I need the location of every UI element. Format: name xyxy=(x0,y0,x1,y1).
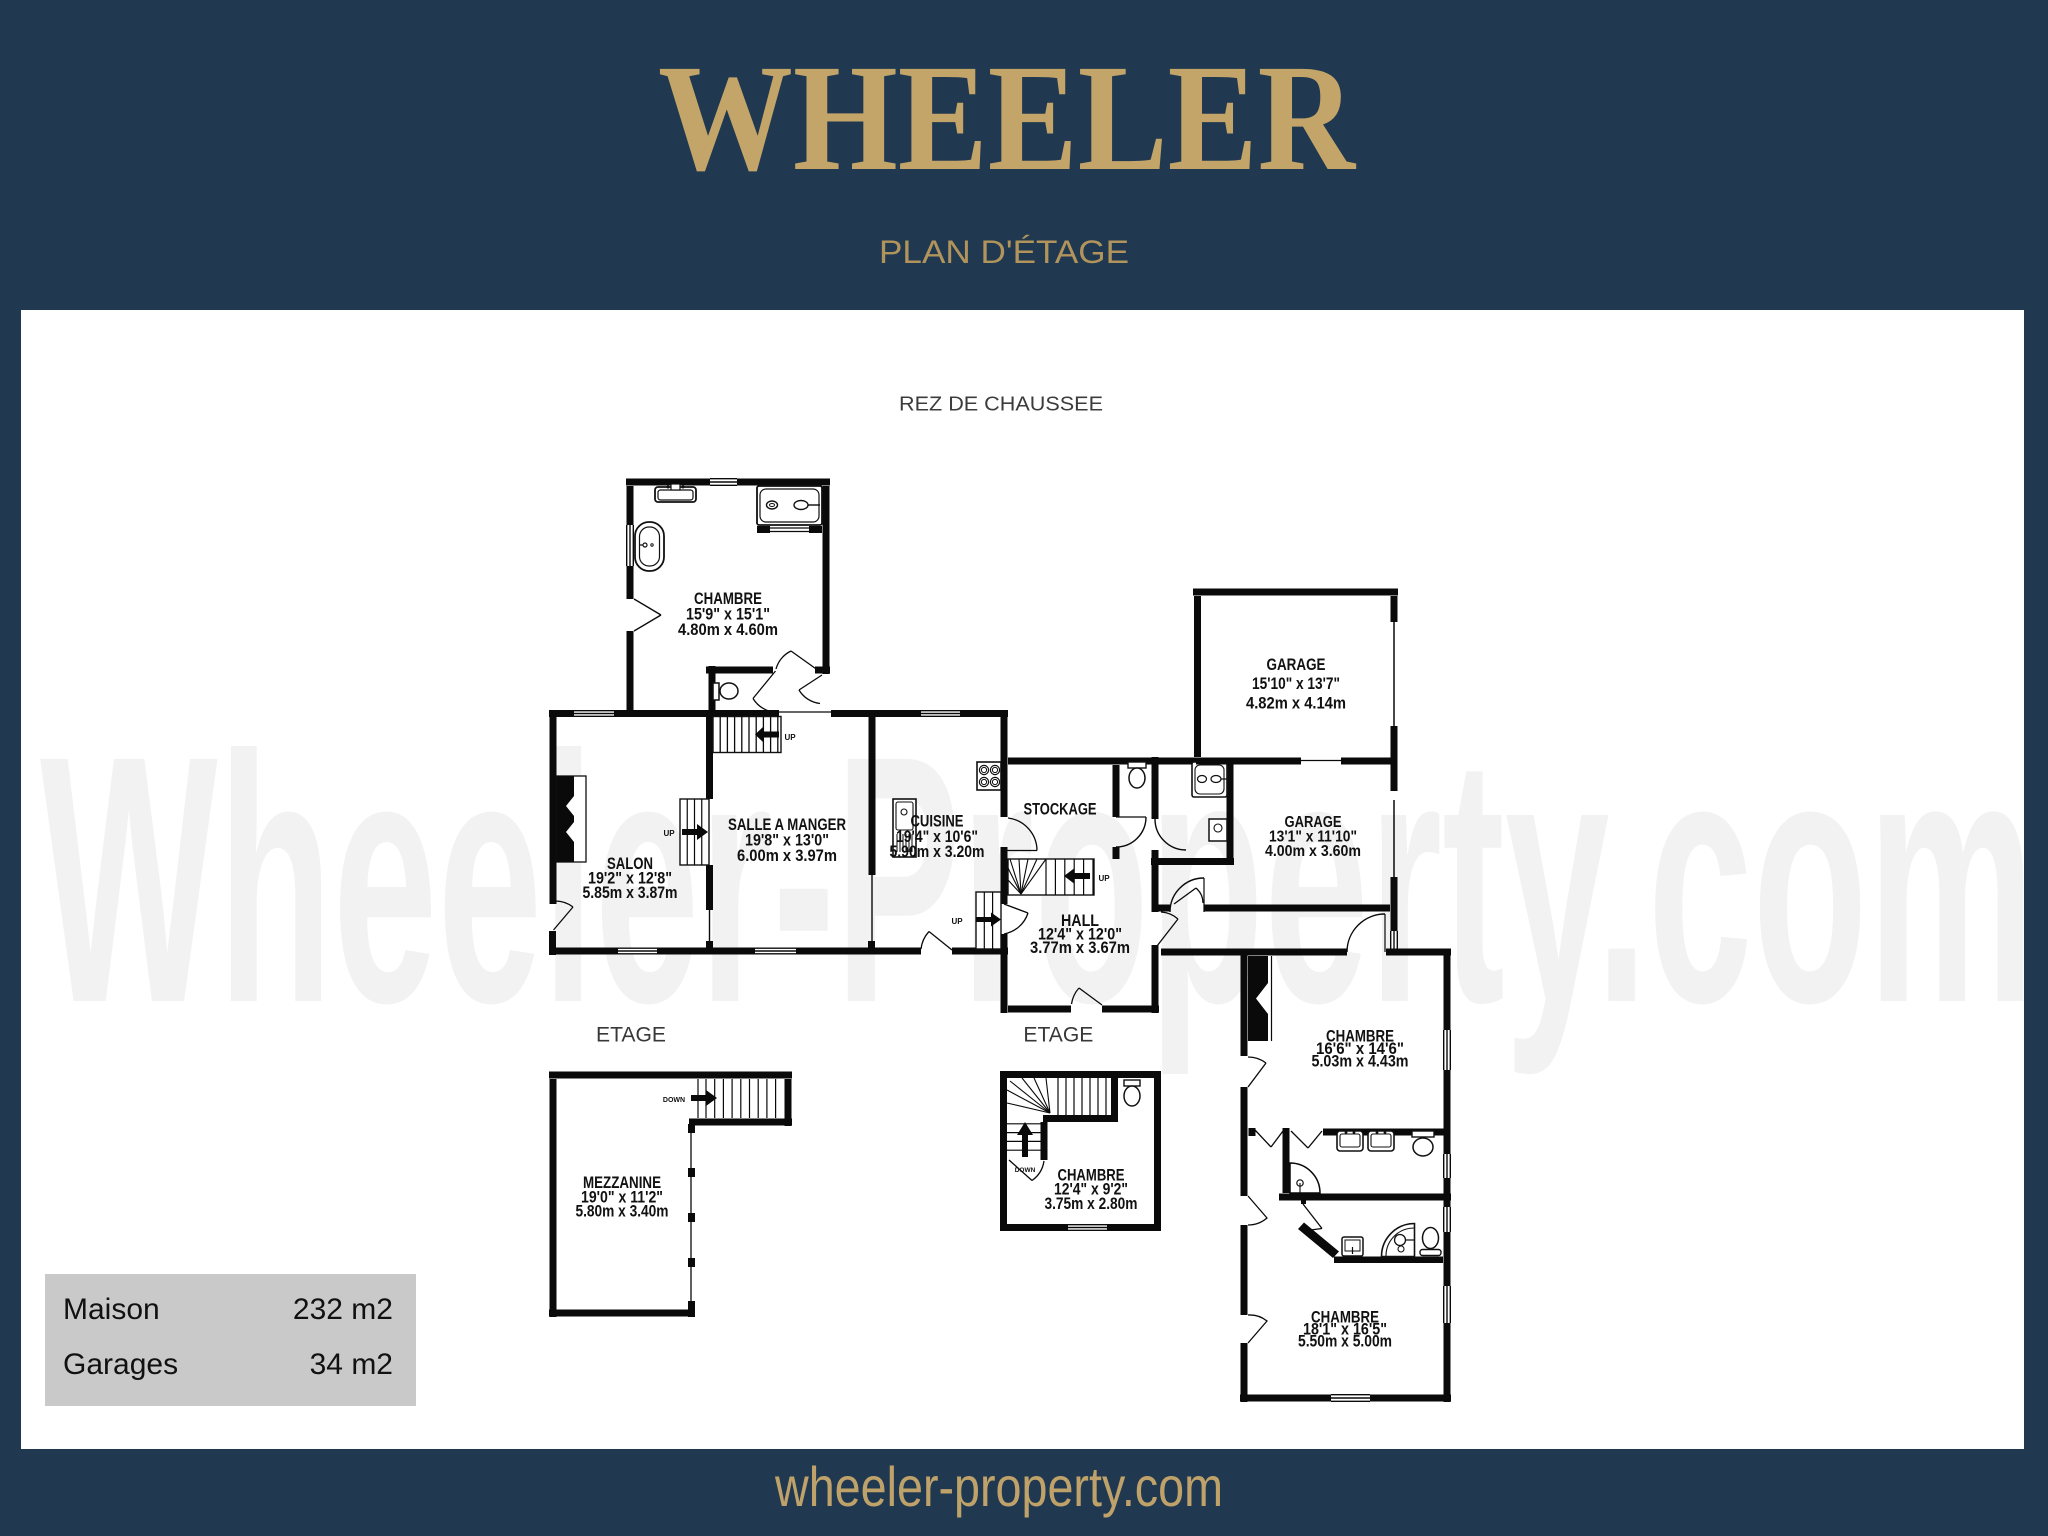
svg-text:UP: UP xyxy=(1098,874,1110,883)
svg-text:232 m2: 232 m2 xyxy=(293,1293,393,1326)
svg-text:4.82m x 4.14m: 4.82m x 4.14m xyxy=(1246,693,1346,712)
svg-text:5.50m x 5.00m: 5.50m x 5.00m xyxy=(1298,1333,1392,1351)
svg-text:UP: UP xyxy=(663,829,675,838)
svg-text:Garages: Garages xyxy=(63,1348,178,1381)
svg-text:PLAN D'ÉTAGE: PLAN D'ÉTAGE xyxy=(879,234,1129,270)
svg-text:3.77m x 3.67m: 3.77m x 3.67m xyxy=(1030,939,1130,957)
svg-text:GARAGE: GARAGE xyxy=(1267,655,1326,674)
svg-text:5.03m x 4.43m: 5.03m x 4.43m xyxy=(1312,1053,1409,1071)
svg-text:UP: UP xyxy=(951,917,963,926)
svg-text:ETAGE: ETAGE xyxy=(1023,1024,1093,1047)
svg-text:DOWN: DOWN xyxy=(1015,1167,1036,1174)
svg-text:STOCKAGE: STOCKAGE xyxy=(1024,801,1097,819)
svg-text:ETAGE: ETAGE xyxy=(596,1024,666,1047)
svg-text:Maison: Maison xyxy=(63,1293,160,1326)
svg-text:3.75m x 2.80m: 3.75m x 2.80m xyxy=(1045,1195,1138,1213)
svg-text:WHEELER: WHEELER xyxy=(658,34,1356,203)
svg-text:4.80m x 4.60m: 4.80m x 4.60m xyxy=(678,621,778,639)
svg-text:DOWN: DOWN xyxy=(663,1097,685,1104)
svg-text:REZ DE CHAUSSEE: REZ DE CHAUSSEE xyxy=(899,394,1103,416)
svg-text:15'10" x 13'7": 15'10" x 13'7" xyxy=(1252,674,1340,693)
svg-text:5.90m x 3.20m: 5.90m x 3.20m xyxy=(890,843,985,861)
svg-text:34 m2: 34 m2 xyxy=(310,1348,393,1381)
svg-text:5.85m x 3.87m: 5.85m x 3.87m xyxy=(583,884,678,902)
svg-text:4.00m x 3.60m: 4.00m x 3.60m xyxy=(1265,843,1361,860)
svg-text:5.80m x 3.40m: 5.80m x 3.40m xyxy=(576,1203,669,1221)
svg-text:wheeler-property.com: wheeler-property.com xyxy=(774,1455,1223,1518)
svg-text:UP: UP xyxy=(784,733,796,742)
svg-text:6.00m x 3.97m: 6.00m x 3.97m xyxy=(737,847,837,865)
